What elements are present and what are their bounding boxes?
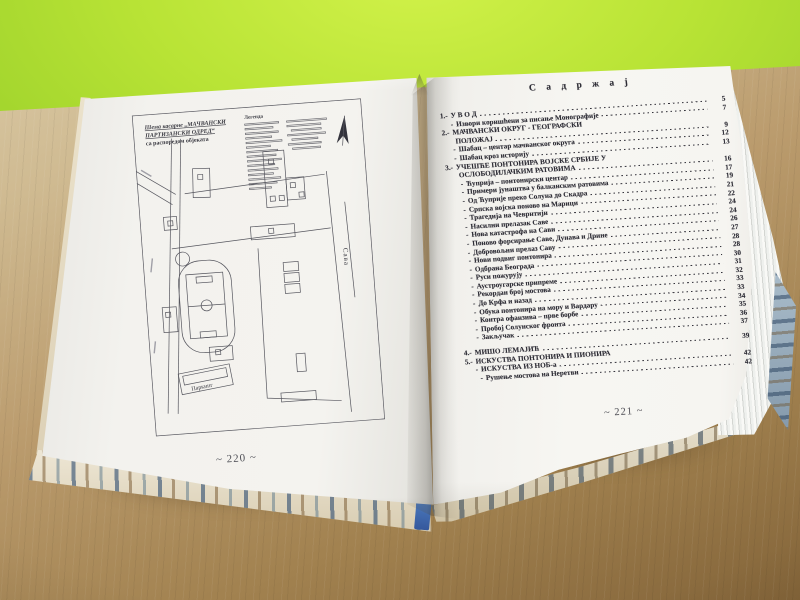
north-arrow-icon [337,115,351,146]
toc-entry-prefix: - [475,325,478,334]
table-of-contents: С а д р ж а ј 1.- У В О Д 5 - Извори кор… [437,66,753,384]
toc-entry-prefix: - [472,291,475,300]
toc-entry-prefix: - [467,248,470,257]
toc-page-number: 37 [732,317,749,327]
map-legend: Легенда [244,109,331,190]
toc-entry-prefix: - [473,308,476,317]
toc-rows: 1.- У В О Д 5 - Извори коришћени за писа… [439,95,752,384]
toc-page-number: 39 [733,331,750,341]
toc-entry-prefix: - [473,300,476,309]
toc-entry-prefix: 3.- [445,163,454,172]
street-label-illegible [150,258,153,272]
toc-entry-label: Закључак [481,332,514,343]
parking-label: Паркинг [191,382,214,392]
toc-entry-prefix: - [476,334,479,343]
photo-of-open-book: Шема касарне „МАЧВАНСКИ ПАРТИЗАНСКИ ОДРЕ… [0,0,800,600]
map-title: Шема касарне „МАЧВАНСКИ ПАРТИЗАНСКИ ОДРЕ… [143,119,227,147]
toc-entry-prefix: - [461,188,464,197]
toc-entry-prefix: - [450,120,453,129]
roads-and-walls [134,127,344,415]
toc-entry-prefix: - [471,283,474,292]
toc-entry-prefix: - [469,265,472,274]
street-label-illegible-3 [141,170,152,177]
river-bank-line [326,171,351,413]
river-label: Сава [341,248,350,267]
buildings [151,149,320,411]
toc-entry-prefix: 2.- [441,129,450,138]
toc-entry-prefix: - [462,197,465,206]
river-sava: Сава [326,170,363,413]
legend-title: Легенда [244,114,264,121]
toc-entry-prefix: - [464,214,467,223]
toc-page-number: 13 [713,137,730,147]
toc-page-number: 42 [736,357,753,367]
toc-entry-prefix: 5.- [464,358,473,367]
toc-entry-prefix: - [460,180,463,189]
toc-entry-prefix: - [465,223,468,232]
toc-entry-prefix: 1.- [439,112,448,121]
toc-entry-prefix: - [468,257,471,266]
toc-entry-prefix: - [466,240,469,249]
toc-entry-prefix: - [474,317,477,326]
toc-entry-prefix: - [454,154,457,163]
toc-entry-prefix: - [470,274,473,283]
parking-area: Паркинг [178,364,233,395]
toc-entry-prefix: - [480,374,483,383]
legend-items-illegible [245,118,332,190]
open-book: Шема касарне „МАЧВАНСКИ ПАРТИЗАНСКИ ОДРЕ… [22,56,800,550]
stadium [177,259,237,355]
map-drawing: Шема касарне „МАЧВАНСКИ ПАРТИЗАНСКИ ОДРЕ… [132,98,385,436]
toc-entry-prefix: - [463,206,466,215]
barracks-map-figure: Шема касарне „МАЧВАНСКИ ПАРТИЗАНСКИ ОДРЕ… [132,98,385,436]
toc-entry-prefix: - [453,146,456,155]
toc-entry-prefix: - [466,231,469,240]
toc-page-number: 7 [710,103,727,113]
street-label-illegible-2 [154,341,157,353]
toc-entry-prefix: - [475,366,478,375]
